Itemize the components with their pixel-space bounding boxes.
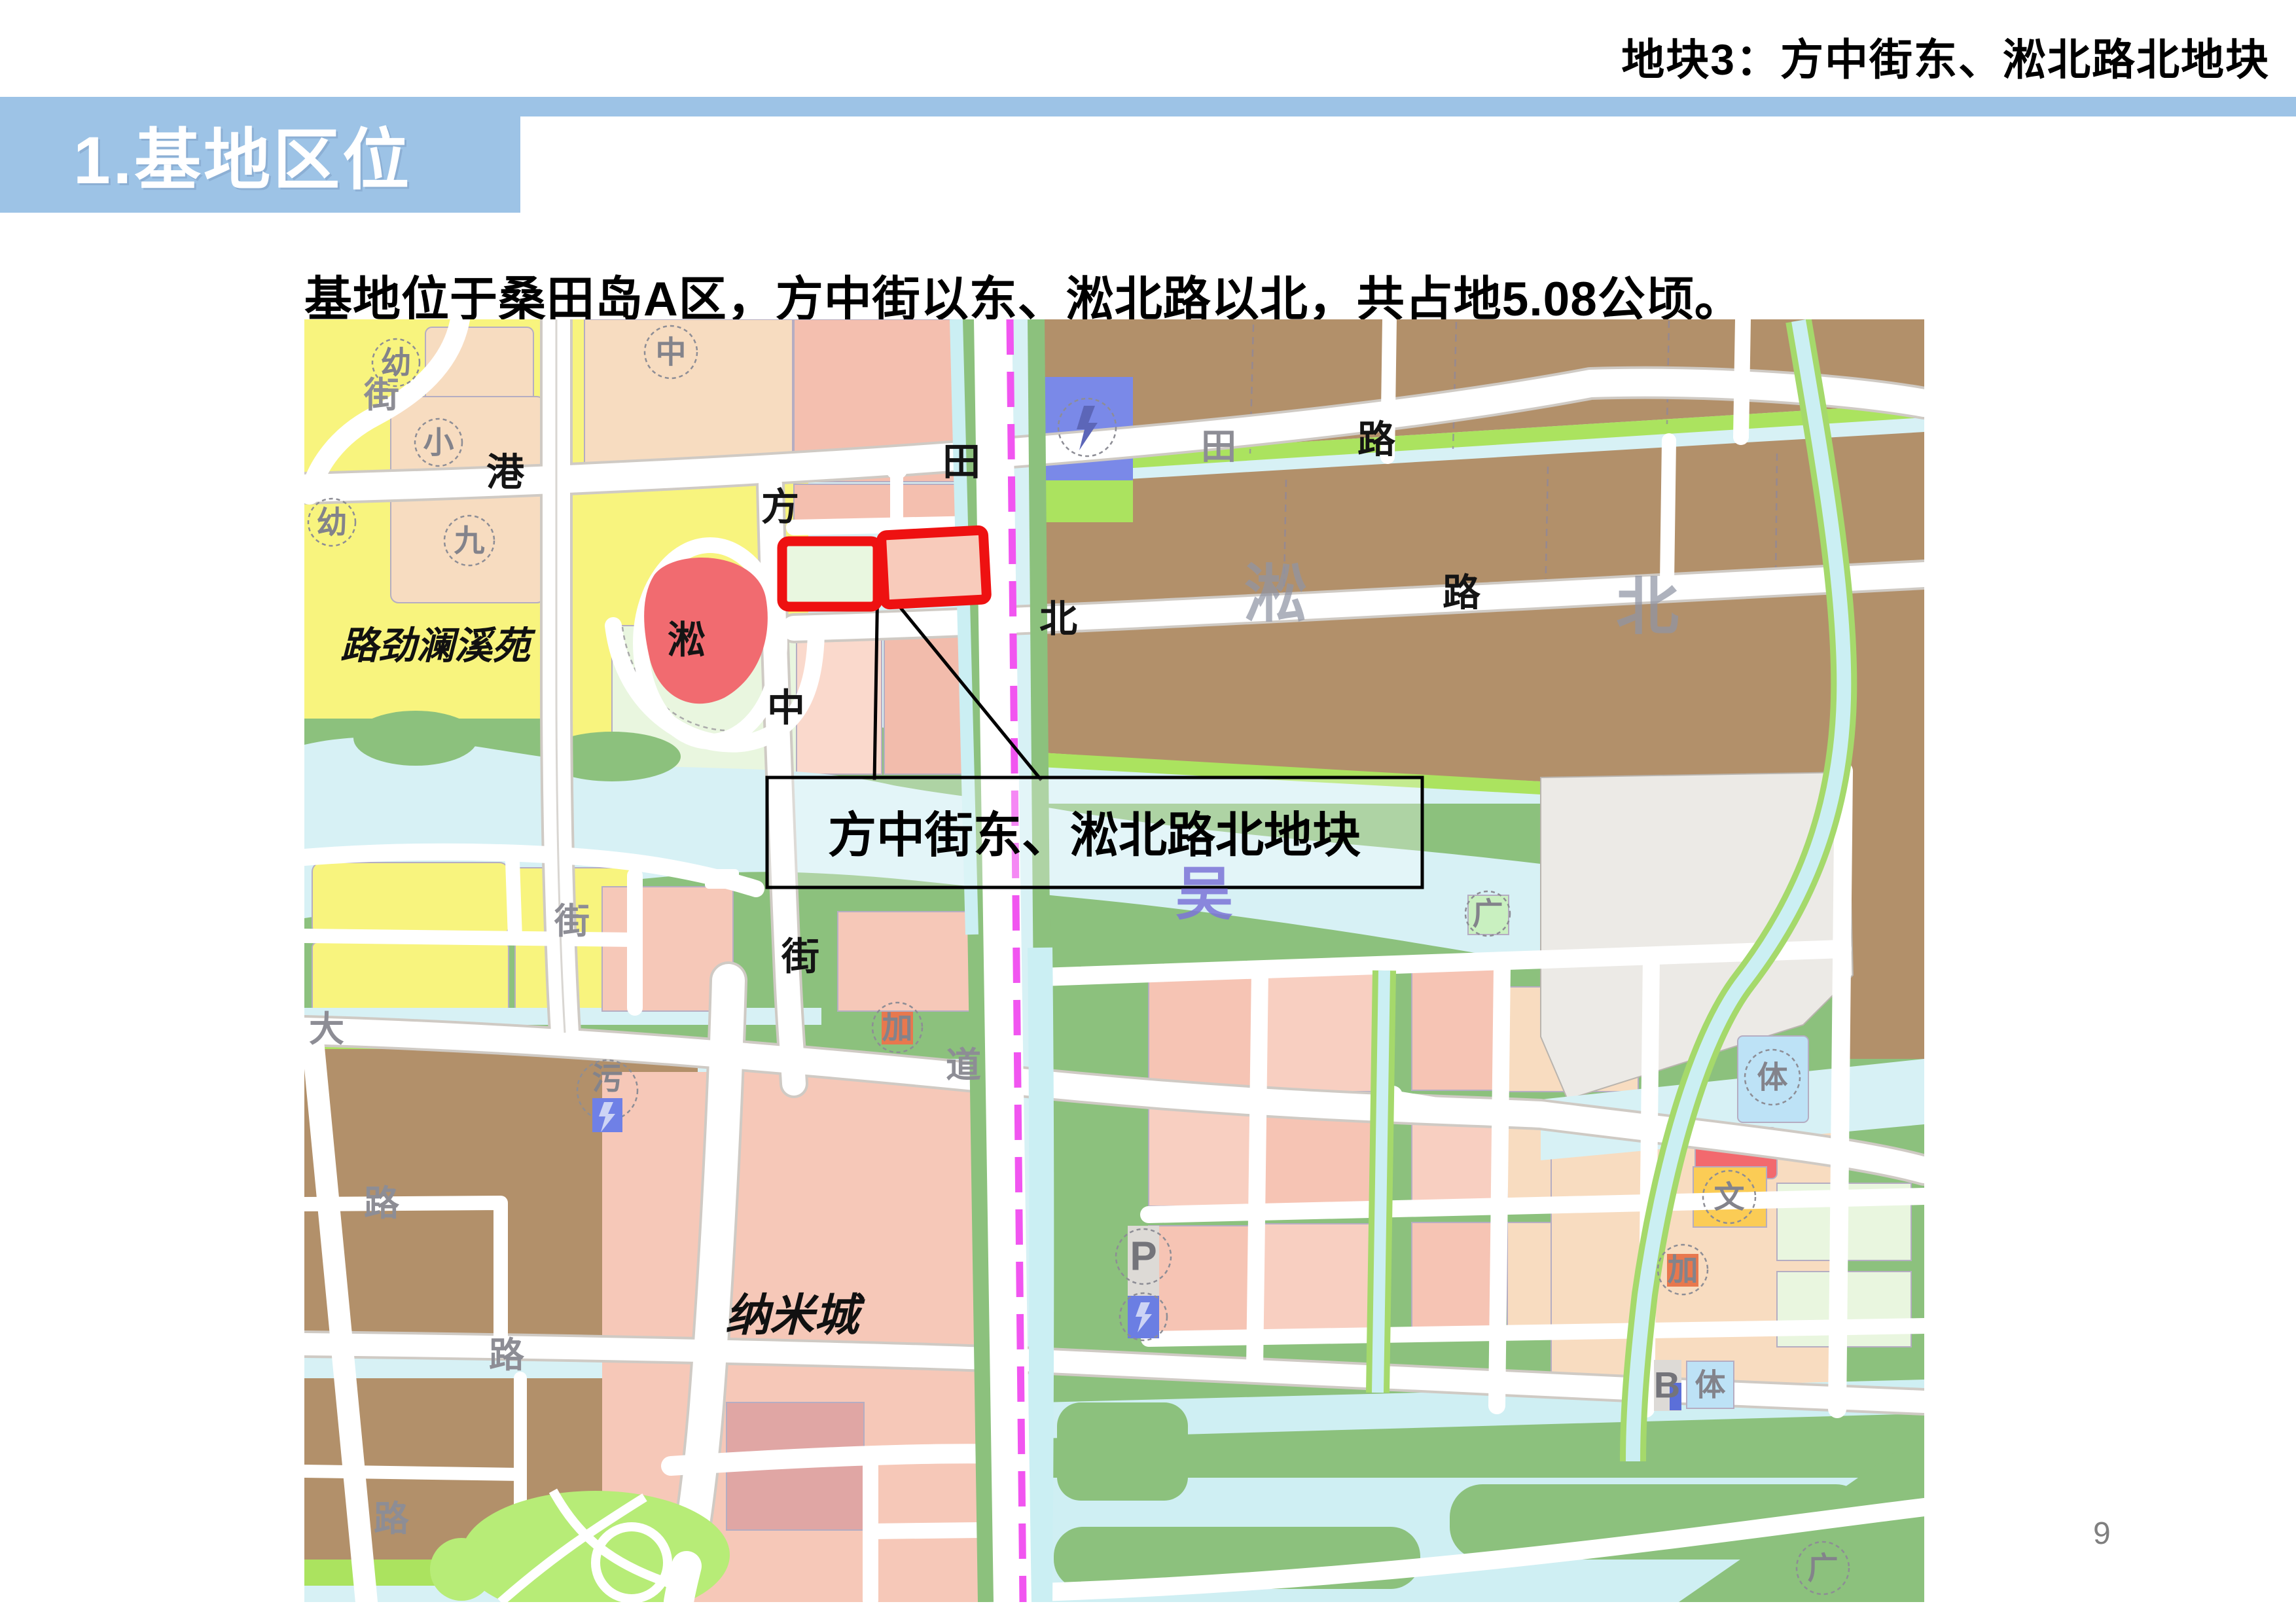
map-label-kindergarten-nw: 幼 — [381, 346, 412, 380]
map-label-zhong-street: 中 — [767, 687, 805, 730]
map-label-sports-s: 体 — [1695, 1368, 1726, 1402]
map-label-song-w: 淞 — [668, 619, 706, 662]
map-label-lujin: 路劲澜溪苑 — [340, 625, 536, 668]
map-label-lu-sw3: 路 — [374, 1499, 410, 1539]
map-label-gas-e: 加 — [1668, 1253, 1698, 1287]
map-label-gang: 港 — [486, 452, 525, 494]
map-label-kindergarten-w: 幼 — [317, 505, 348, 540]
map-label-bei: 北 — [1039, 598, 1077, 641]
zone-nami-ne — [838, 912, 978, 1011]
map-label-lu-ne: 路 — [1357, 419, 1396, 461]
map-label-primary-school: 小 — [423, 425, 454, 460]
site-parcel-west — [782, 541, 878, 607]
map-label-lu-sw2: 路 — [489, 1336, 525, 1375]
map-label-da: 大 — [309, 1010, 344, 1049]
map-label-jie-street: 街 — [781, 936, 819, 978]
map-label-fang: 方 — [761, 486, 799, 529]
map-label-zhong-circle: 中 — [656, 335, 687, 370]
map-label-jie-w: 街 — [554, 902, 590, 941]
map-label-street-nw: 街 — [363, 376, 399, 415]
map-label-song-watermark: 淞 — [1244, 560, 1307, 630]
park-blob-1 — [1057, 1402, 1188, 1501]
section-banner: 1.基地区位 — [0, 97, 520, 213]
map-label-lu-sw1: 路 — [364, 1184, 400, 1223]
site-callout: 方中街东、淞北路北地块 — [767, 777, 1422, 887]
map-label-plaza-s: 广 — [1808, 1551, 1839, 1586]
map-label-tian-e: 田 — [942, 441, 980, 484]
callout-label: 方中街东、淞北路北地块 — [828, 808, 1361, 863]
location-map: 方中街东、淞北路北地块 污 P 幼 小 九 幼 中 广 — [304, 319, 1924, 1602]
zone-se-pink-grid — [1149, 966, 1497, 1336]
map-label-dao: 道 — [946, 1046, 981, 1085]
map-label-bus: B — [1654, 1364, 1680, 1406]
map-label-sports-n: 体 — [1757, 1060, 1788, 1095]
map-label-plaza-n: 广 — [1473, 897, 1503, 931]
verge-substation — [1043, 480, 1133, 522]
page-title: 地块3：方中街东、淞北路北地块 — [1621, 25, 2270, 88]
map-label-nami-city: 纳米城 — [725, 1291, 865, 1340]
map-label-bei-watermark: 北 — [1616, 573, 1679, 643]
riverbank-bump-1 — [353, 711, 478, 766]
map-label-lu-e: 路 — [1443, 572, 1481, 615]
site-parcel-east — [881, 530, 986, 605]
map-label-culture: 文 — [1714, 1180, 1745, 1215]
svg-text:P: P — [1130, 1234, 1157, 1279]
svg-text:污: 污 — [592, 1061, 623, 1096]
zone-village-sw-1 — [312, 863, 509, 936]
location-map-svg: 方中街东、淞北路北地块 污 P 幼 小 九 幼 中 广 — [304, 319, 1924, 1602]
section-banner-label: 1.基地区位 — [73, 107, 412, 203]
map-label-nine: 九 — [454, 524, 485, 558]
map-label-gas-w: 加 — [882, 1010, 913, 1045]
map-label-tian-gray: 田 — [1201, 427, 1236, 467]
page-number: 9 — [2093, 1516, 2111, 1552]
map-label-wu-river: 吴 — [1175, 862, 1233, 927]
